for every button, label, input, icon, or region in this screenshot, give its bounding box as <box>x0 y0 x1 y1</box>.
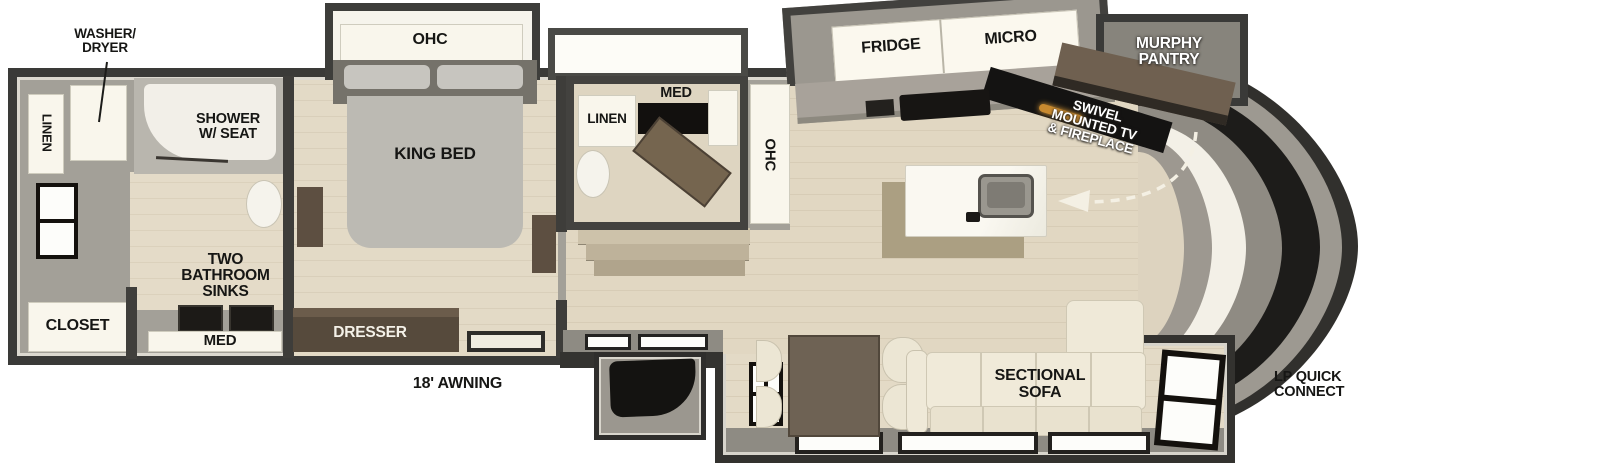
murphy-pantry-label: MURPHY PANTRY <box>1108 36 1230 68</box>
pillow-right <box>437 65 523 89</box>
slide-window-3 <box>1048 432 1150 454</box>
linen-mid-label: LINEN <box>578 112 636 126</box>
living-ohc-label: OHC <box>762 117 778 192</box>
bedroom-ohc-label: OHC <box>380 32 480 49</box>
lp-quick-connect-label: LP QUICK CONNECT <box>1274 370 1379 400</box>
two-bath-sinks-label: TWO BATHROOM SINKS <box>163 252 288 300</box>
pillow-left <box>344 65 430 89</box>
dresser-label: DRESSER <box>300 325 440 341</box>
med-mid-label: MED <box>648 86 704 101</box>
linen-rear-label: LINEN <box>40 95 54 170</box>
mid-bath-counter <box>708 90 738 146</box>
rv-floorplan: FRIDGE MICRO LINEN SHOWER W/ SEAT CLOSET… <box>0 0 1600 474</box>
dinette-table <box>788 335 880 437</box>
slide-window-2 <box>898 432 1038 454</box>
hall-steps <box>578 228 750 276</box>
bath-sink-right <box>229 305 274 332</box>
bedroom-step <box>467 331 545 352</box>
mid-bath-slideout <box>548 28 748 80</box>
king-bed <box>347 96 523 248</box>
sectional-sofa-label: SECTIONAL SOFA <box>975 368 1105 401</box>
island-sink <box>978 174 1034 218</box>
king-bed-label: KING BED <box>375 145 495 163</box>
island-faucet <box>966 212 980 222</box>
galley-window-1 <box>585 334 631 350</box>
galley-window-2 <box>638 334 708 350</box>
med-rear-label: MED <box>180 333 260 349</box>
nightstand-left <box>297 187 323 247</box>
closet-wall <box>126 287 137 359</box>
slide-right-window <box>1154 349 1226 450</box>
rear-window <box>36 183 78 259</box>
closet-label: CLOSET <box>30 318 125 335</box>
toilet-mid <box>576 150 610 198</box>
sofa-chaise <box>1066 300 1144 360</box>
shower-label: SHOWER W/ SEAT <box>168 112 288 142</box>
bath-sink-left <box>178 305 223 332</box>
washer-dryer-unit <box>70 85 127 161</box>
nightstand-right <box>532 215 556 273</box>
kitchen-island <box>905 165 1047 237</box>
kitchen-sink-inset <box>865 99 894 117</box>
awning-label: 18' AWNING <box>390 376 525 393</box>
washer-dryer-label: WASHER/ DRYER <box>50 27 160 55</box>
sofa-armrest <box>906 350 928 434</box>
toilet-rear <box>246 180 282 228</box>
